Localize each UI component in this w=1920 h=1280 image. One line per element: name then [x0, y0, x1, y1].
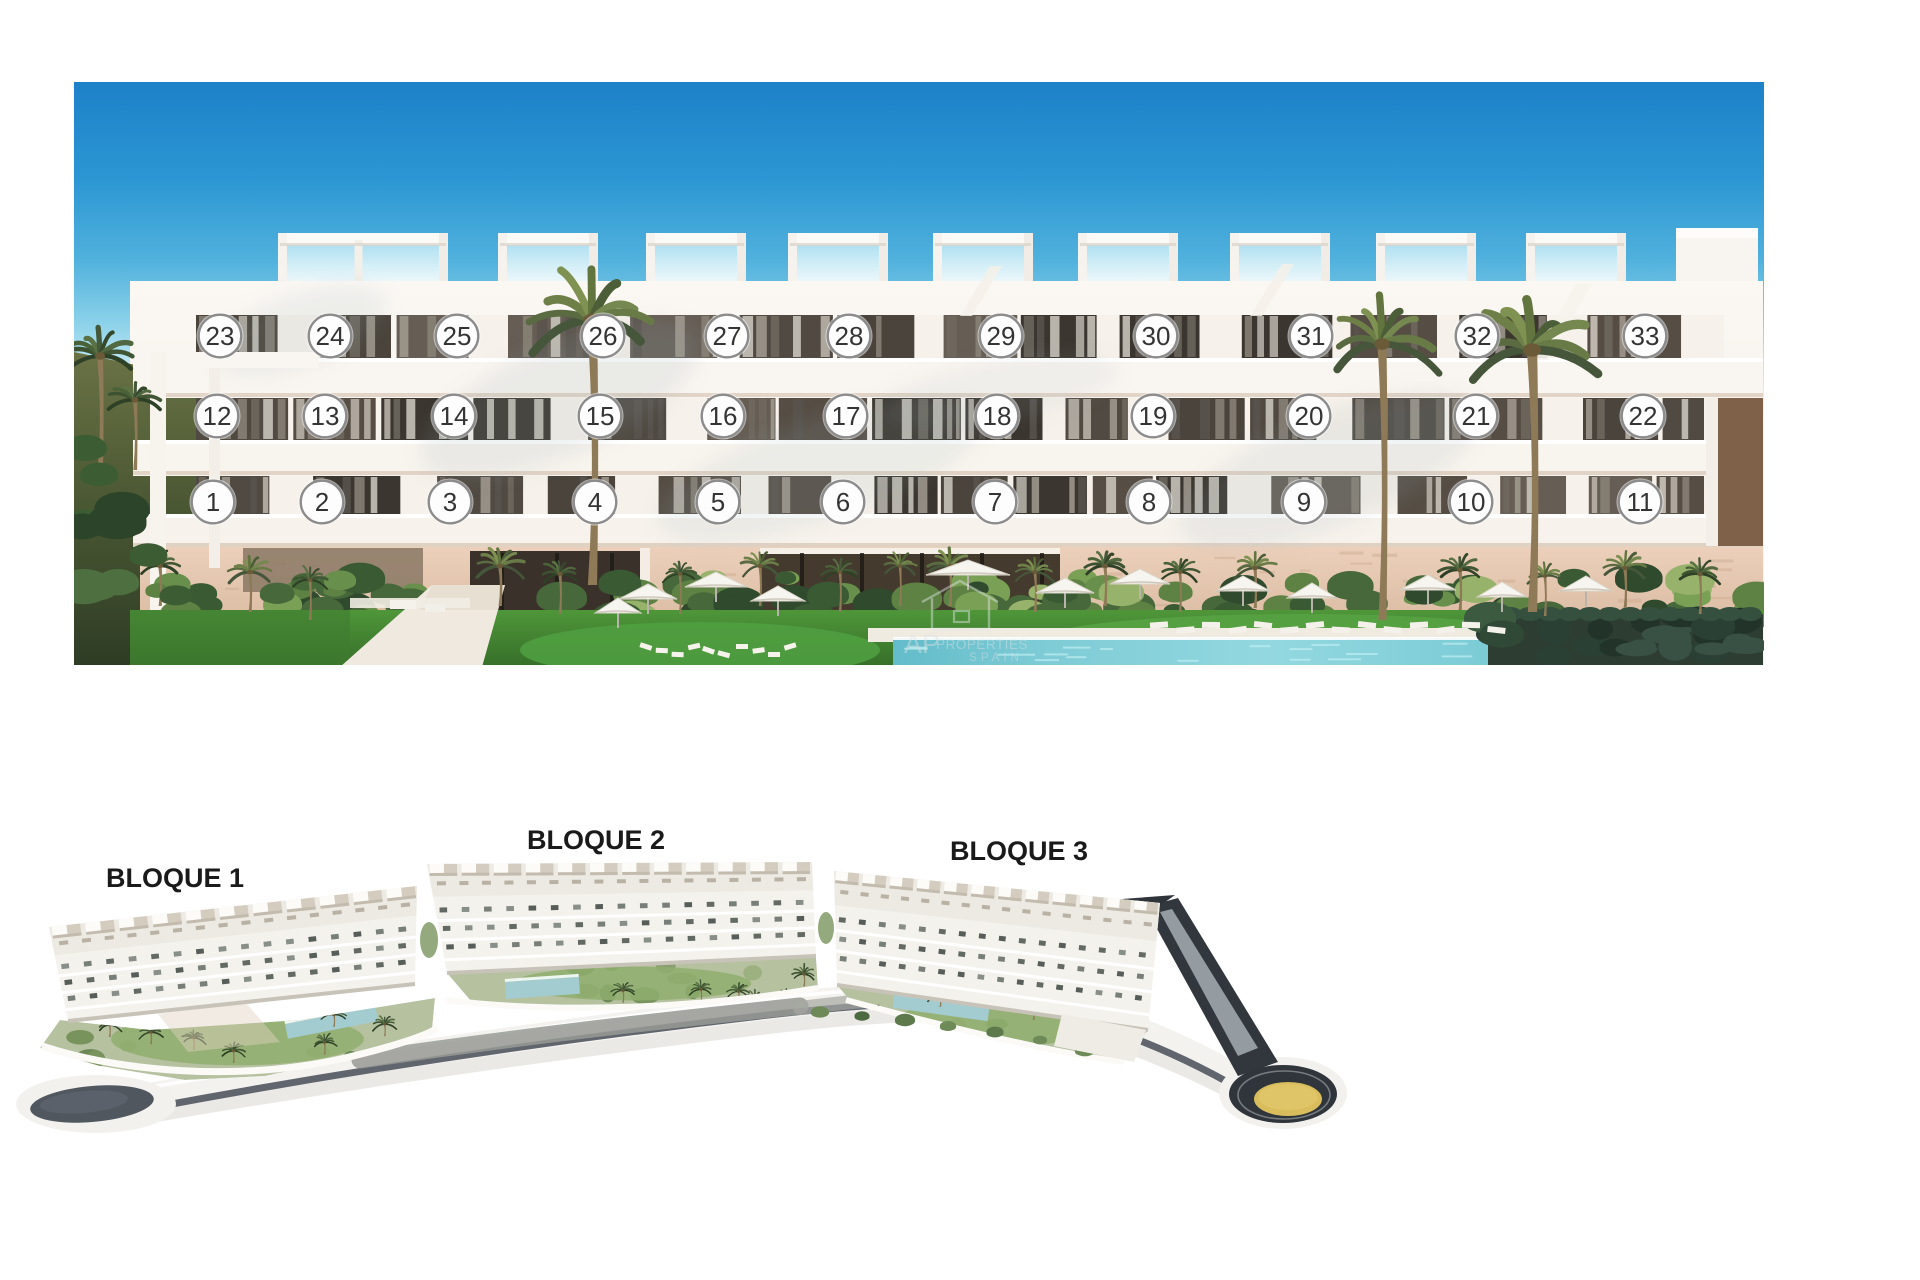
svg-text:BLOQUE 2: BLOQUE 2: [527, 825, 665, 855]
svg-text:32: 32: [1463, 321, 1492, 351]
svg-text:BLOQUE 3: BLOQUE 3: [950, 836, 1088, 866]
svg-text:12: 12: [203, 401, 232, 431]
svg-text:13: 13: [311, 401, 340, 431]
svg-text:PROPERTIES: PROPERTIES: [936, 637, 1028, 652]
svg-text:SPAIN: SPAIN: [969, 652, 1023, 664]
svg-text:BLOQUE 1: BLOQUE 1: [106, 863, 244, 893]
svg-text:31: 31: [1297, 321, 1326, 351]
svg-text:14: 14: [440, 401, 469, 431]
svg-text:2: 2: [315, 487, 329, 517]
svg-text:17: 17: [832, 401, 861, 431]
svg-text:5: 5: [711, 487, 725, 517]
svg-text:6: 6: [836, 487, 850, 517]
svg-text:27: 27: [713, 321, 742, 351]
svg-text:23: 23: [206, 321, 235, 351]
svg-text:1: 1: [206, 487, 220, 517]
svg-text:19: 19: [1139, 401, 1168, 431]
svg-text:3: 3: [443, 487, 457, 517]
svg-text:9: 9: [1297, 487, 1311, 517]
svg-text:25: 25: [443, 321, 472, 351]
svg-text:18: 18: [983, 401, 1012, 431]
svg-text:29: 29: [987, 321, 1016, 351]
svg-text:22: 22: [1629, 401, 1658, 431]
svg-text:10: 10: [1457, 487, 1486, 517]
svg-text:20: 20: [1295, 401, 1324, 431]
svg-text:AP: AP: [904, 629, 940, 659]
svg-text:7: 7: [988, 487, 1002, 517]
svg-text:8: 8: [1142, 487, 1156, 517]
svg-text:21: 21: [1462, 401, 1491, 431]
svg-text:26: 26: [589, 321, 618, 351]
svg-text:15: 15: [586, 401, 615, 431]
svg-text:11: 11: [1627, 487, 1654, 517]
svg-text:30: 30: [1142, 321, 1171, 351]
svg-text:28: 28: [835, 321, 864, 351]
svg-text:16: 16: [709, 401, 738, 431]
svg-text:24: 24: [316, 321, 345, 351]
svg-text:33: 33: [1631, 321, 1660, 351]
svg-text:4: 4: [588, 487, 602, 517]
